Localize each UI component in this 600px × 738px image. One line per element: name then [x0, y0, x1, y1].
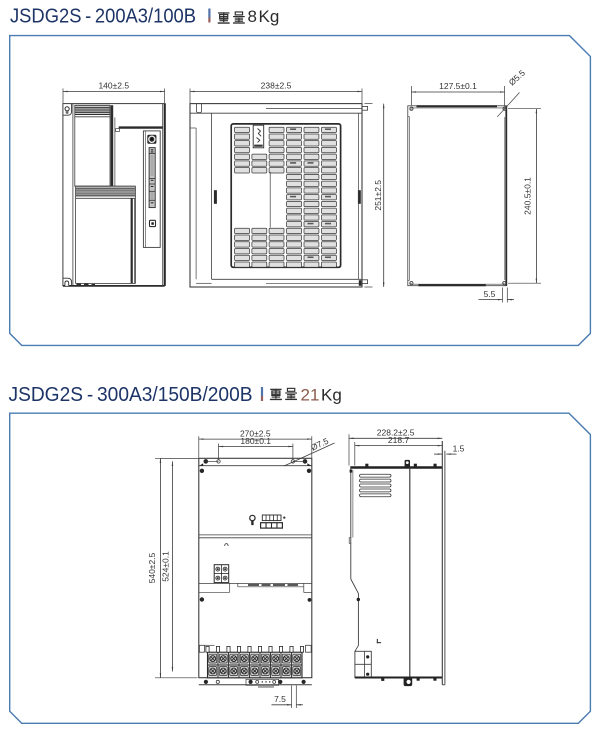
svg-text:JSDG2S - 300A3/150B/200B: JSDG2S - 300A3/150B/200B: [9, 384, 253, 406]
svg-text:Ø5.5: Ø5.5: [507, 68, 528, 88]
svg-text:524±0.1: 524±0.1: [160, 551, 170, 582]
svg-text:Kg: Kg: [321, 386, 342, 405]
svg-text:140±2.5: 140±2.5: [98, 81, 129, 91]
svg-text:7.5: 7.5: [274, 694, 286, 704]
svg-text:540±2.5: 540±2.5: [147, 552, 157, 583]
svg-text:JSDG2S - 200A3/100B: JSDG2S - 200A3/100B: [10, 6, 196, 28]
svg-text:238±2.5: 238±2.5: [261, 81, 292, 91]
svg-text:1.5: 1.5: [453, 444, 465, 454]
svg-text:5.5: 5.5: [484, 289, 496, 299]
svg-text:251±2.5: 251±2.5: [373, 180, 383, 211]
svg-text:127.5±0.1: 127.5±0.1: [439, 81, 477, 91]
svg-text:240.5±0.1: 240.5±0.1: [522, 177, 532, 215]
svg-text:8: 8: [248, 7, 257, 26]
svg-text:180±0.1: 180±0.1: [240, 436, 271, 446]
svg-text:21: 21: [301, 386, 320, 405]
svg-text:218.7: 218.7: [388, 435, 410, 445]
svg-text:Kg: Kg: [259, 7, 280, 26]
